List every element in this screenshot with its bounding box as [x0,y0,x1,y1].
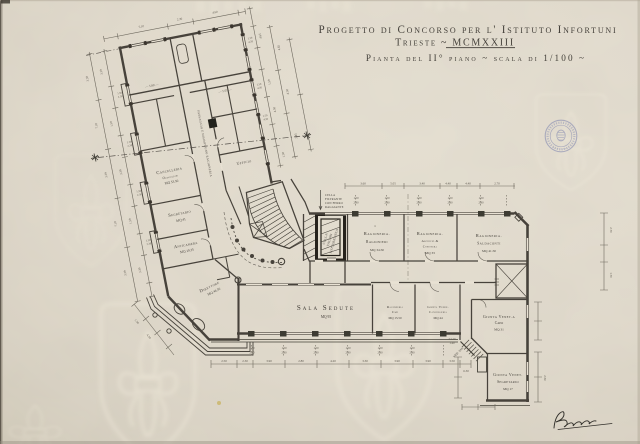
svg-text:Ragioneria.: Ragioneria. [476,233,502,238]
svg-text:3.40: 3.40 [419,182,425,186]
svg-text:Capo: Capo [495,321,504,325]
svg-text:2.80: 2.80 [313,351,319,355]
svg-text:Archivio &: Archivio & [421,239,438,243]
svg-text:MQ 33: MQ 33 [425,251,435,255]
svg-text:2.70: 2.70 [609,227,613,233]
svg-text:RAGGIANTE: RAGGIANTE [325,205,344,209]
svg-text:Progetto di Concorso per l' Is: Progetto di Concorso per l' Istituto Inf… [319,24,618,36]
svg-text:1: 1 [374,224,376,228]
svg-text:MQ 15.50: MQ 15.50 [388,316,402,320]
svg-text:2.80: 2.80 [353,201,359,205]
svg-text:1.50: 1.50 [478,196,484,200]
svg-text:2.60: 2.60 [543,375,547,381]
svg-text:Giunta Venez.: Giunta Venez. [427,305,449,309]
svg-text:1.50: 1.50 [345,346,351,350]
svg-text:2.80: 2.80 [281,351,287,355]
svg-text:Sala Sedute: Sala Sedute [297,304,355,312]
svg-text:2.80: 2.80 [298,359,304,363]
svg-text:Segretario: Segretario [497,380,519,384]
svg-text:3.30: 3.30 [362,359,368,363]
svg-text:1.50: 1.50 [249,346,255,350]
svg-text:2.80: 2.80 [377,351,383,355]
svg-text:3.90: 3.90 [266,359,272,363]
svg-text:3.50: 3.50 [449,359,455,363]
svg-text:Ragioneria.: Ragioneria. [417,231,443,236]
svg-text:Ragioneria.: Ragioneria. [364,231,390,236]
svg-text:Cancelleria: Cancelleria [429,310,447,314]
svg-text:1.70: 1.70 [609,272,613,278]
svg-text:Giunta Venet.a: Giunta Venet.a [483,314,516,319]
svg-text:4.20: 4.20 [330,359,336,363]
svg-text:1.50: 1.50 [353,196,359,200]
svg-text:2.80: 2.80 [249,351,255,355]
svg-text:1.50: 1.50 [377,346,383,350]
svg-text:4.40: 4.40 [445,182,451,186]
svg-text:2.80: 2.80 [447,201,453,205]
svg-text:1.50: 1.50 [384,196,390,200]
svg-text:3.90: 3.90 [394,359,400,363]
svg-text:3.90: 3.90 [425,359,431,363]
svg-text:MQ 95: MQ 95 [321,315,331,319]
svg-text:1.50: 1.50 [409,346,415,350]
svg-text:2.80: 2.80 [478,201,484,205]
svg-text:1.50: 1.50 [313,346,319,350]
svg-text:Giunta Venet.: Giunta Venet. [493,372,523,377]
svg-text:Saldaconti: Saldaconti [477,242,501,246]
svg-text:3.60: 3.60 [360,182,366,186]
svg-text:Pianta del II° piano ~ scala d: Pianta del II° piano ~ scala di 1/100 ~ [366,53,586,63]
svg-text:1.50: 1.50 [416,196,422,200]
svg-text:Trieste ~ MCMXXIII: Trieste ~ MCMXXIII [395,38,515,49]
svg-text:Ragionieri: Ragionieri [366,240,388,244]
svg-text:2.70: 2.70 [494,182,500,186]
svg-text:2.30: 2.30 [242,359,248,363]
svg-text:1.50: 1.50 [281,346,287,350]
svg-text:MQ 34.50: MQ 34.50 [370,248,384,252]
svg-text:Capo: Capo [392,310,399,314]
svg-text:Ragioneria: Ragioneria [387,305,404,309]
svg-text:4.40: 4.40 [465,182,471,186]
svg-text:2.50: 2.50 [221,359,227,363]
svg-text:Copistera: Copistera [423,245,438,249]
svg-text:MQ 31: MQ 31 [494,328,504,332]
svg-text:MQ 44: MQ 44 [433,316,443,320]
svg-text:2.80: 2.80 [384,201,390,205]
svg-text:5.05: 5.05 [390,182,396,186]
svg-text:MQ 17: MQ 17 [503,387,513,391]
svg-text:1.50: 1.50 [447,196,453,200]
svg-text:1.40: 1.40 [449,341,455,345]
svg-text:6.30: 6.30 [463,369,469,373]
svg-text:2.80: 2.80 [345,351,351,355]
svg-text:2.80: 2.80 [409,351,415,355]
svg-text:2.80: 2.80 [416,201,422,205]
svg-text:MQ 41.50: MQ 41.50 [482,249,496,253]
